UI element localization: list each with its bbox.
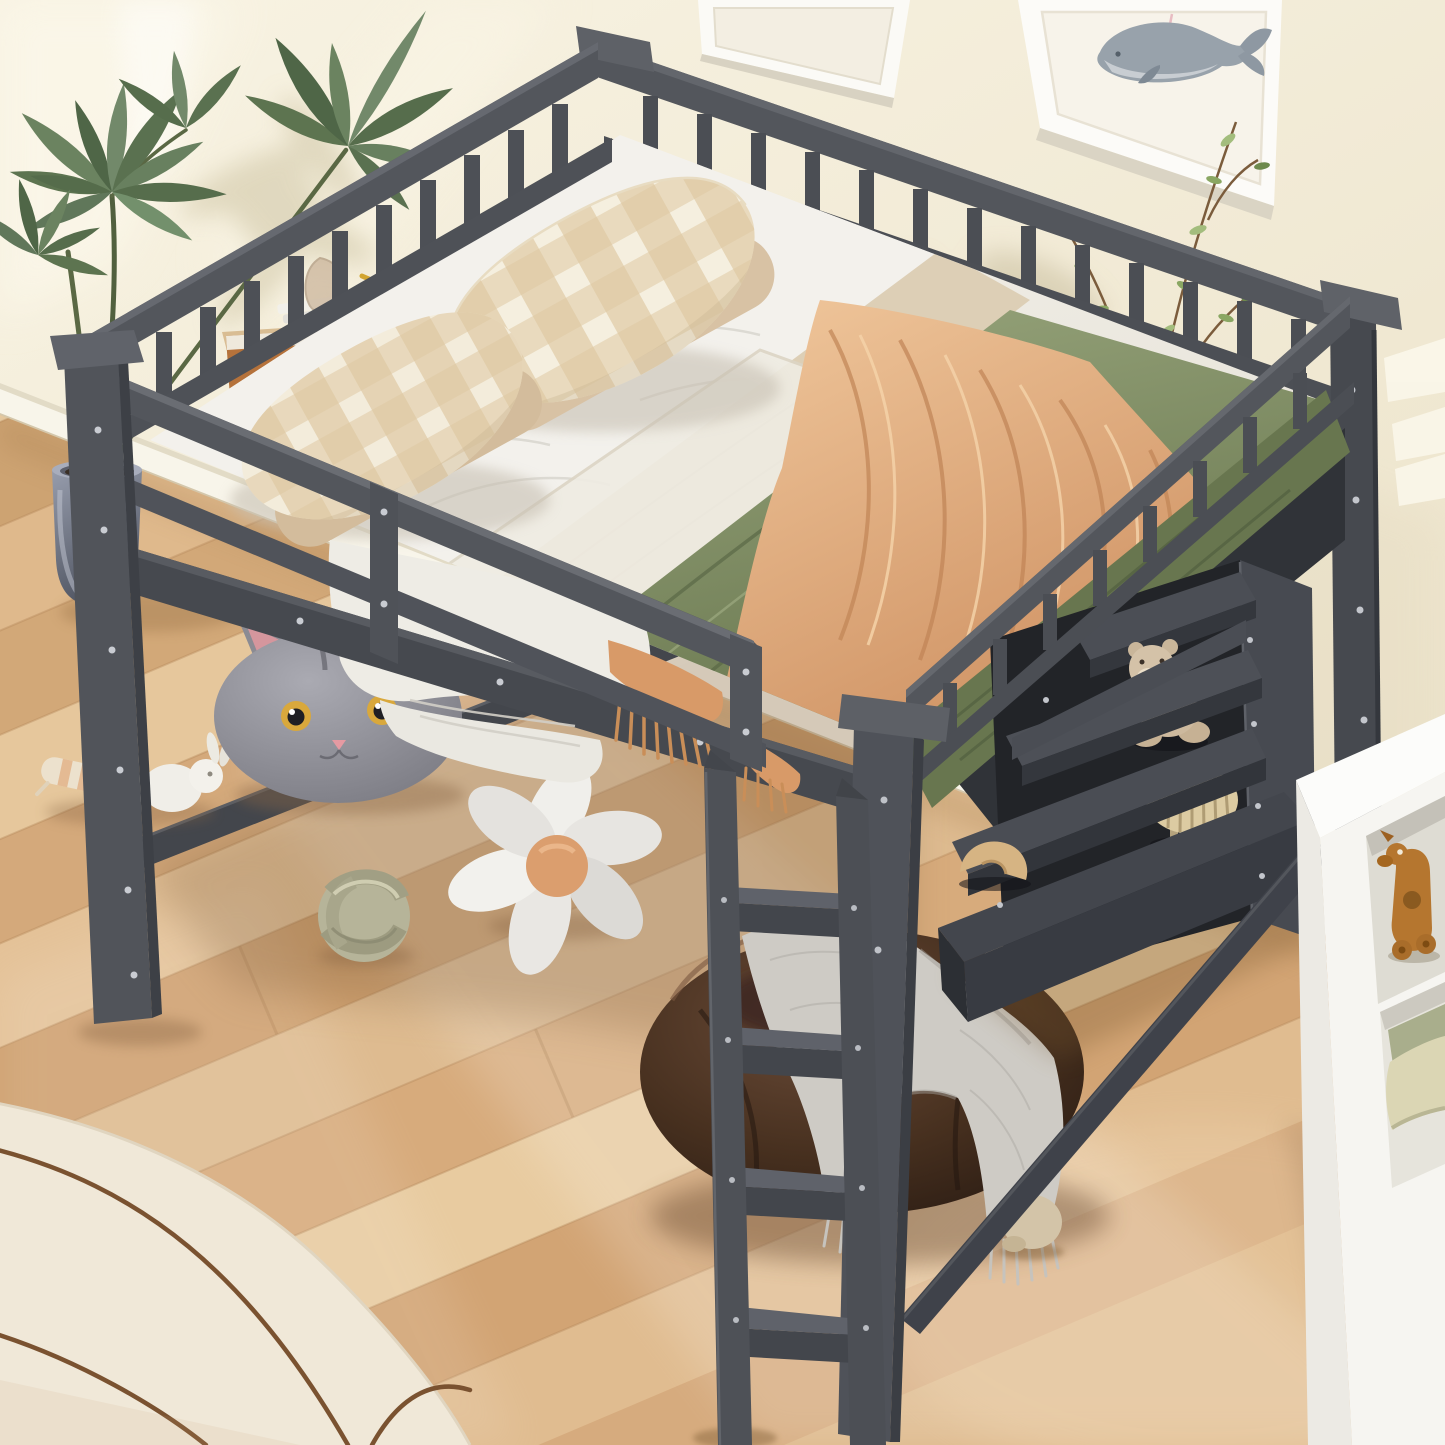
front-picket-end [730,634,762,772]
white-cube-organizer [1285,714,1445,1445]
loft-bed-room-photo: Gray wooden full-size loft bed with fron… [0,0,1445,1445]
knot-ball [318,870,410,962]
